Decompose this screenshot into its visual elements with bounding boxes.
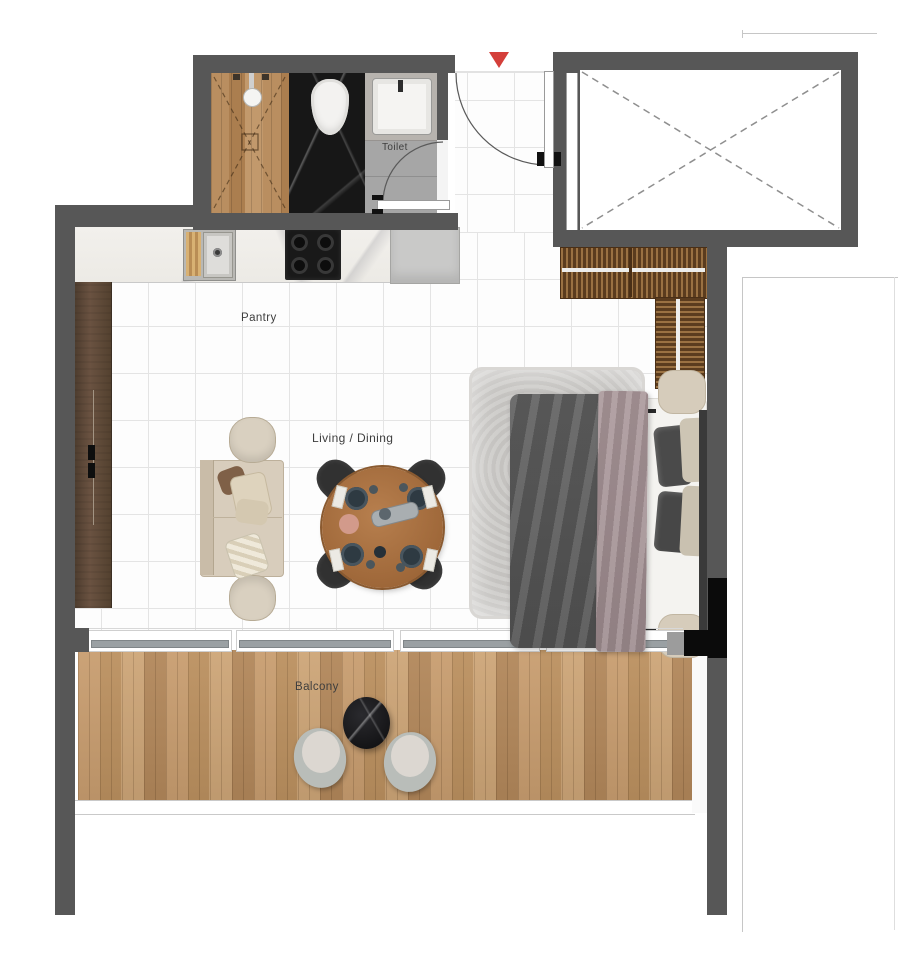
wall-bathroom-bottom: [193, 213, 458, 230]
structural-column: [684, 630, 710, 656]
balcony-right-gap: [692, 650, 707, 813]
floor-plan: Toilet Pantry Living / Dining Balcony: [0, 0, 900, 979]
place-setting-plate: [345, 487, 368, 510]
armchair-top: [229, 417, 276, 463]
bed-headboard: [699, 410, 707, 634]
balcony-table: [343, 697, 390, 749]
shower-head: [243, 88, 262, 107]
room-label-pantry: Pantry: [241, 312, 277, 324]
sink-faucet-icon: [213, 248, 222, 257]
shower-valve-mark: [262, 74, 269, 80]
wall-right: [707, 232, 727, 915]
wardrobe-rod: [562, 268, 705, 272]
place-setting-plate: [341, 543, 364, 566]
balcony-chair-cushion: [391, 735, 429, 777]
wall-left-top: [55, 205, 193, 227]
wall-shaft-right: [841, 52, 858, 247]
glass: [366, 560, 375, 569]
sofa-pillow-beige: [234, 498, 269, 526]
toilet-door-opening: [437, 140, 448, 205]
glass: [399, 483, 408, 492]
table-centerpiece-item: [379, 508, 391, 520]
context-line-right-h: [742, 277, 898, 278]
armchair-bottom: [229, 575, 276, 621]
bed-throw-blanket: [596, 391, 649, 653]
room-label-toilet: Toilet: [382, 142, 408, 153]
toilet-door: [377, 200, 450, 210]
basin-faucet-icon: [398, 80, 403, 92]
balcony-chair-cushion: [302, 731, 340, 773]
wardrobe-divider: [629, 247, 632, 297]
wall-left: [55, 205, 75, 915]
wall-bathroom-left: [193, 55, 211, 213]
entry-door: [544, 71, 554, 168]
toilet-door-hinge: [372, 195, 383, 200]
room-label-living-dining: Living / Dining: [312, 431, 393, 445]
toilet-door-hinge: [372, 209, 383, 214]
sliding-door-glass: [91, 640, 229, 648]
wall-bathroom-top: [193, 55, 455, 73]
hob-burner: [317, 234, 334, 251]
wardrobe-top-section: [560, 247, 709, 299]
entry-marker-icon: [489, 52, 509, 68]
balcony-edge-band: [75, 800, 695, 815]
entry-door-hinge: [554, 152, 561, 166]
hob-burner: [291, 257, 308, 274]
context-line-right-v: [742, 277, 743, 932]
hob-burner: [291, 234, 308, 251]
glass: [369, 485, 378, 494]
bedside-pouf-top: [658, 370, 706, 414]
sliding-door-panel: [88, 630, 232, 652]
wall-balcony-corner: [75, 628, 89, 652]
refrigerator: [390, 227, 460, 284]
table-cup: [374, 546, 386, 558]
wall-shaft-top: [553, 52, 858, 70]
sofa-backrest: [200, 460, 214, 575]
sliding-door-panel: [236, 630, 394, 652]
structural-column: [708, 578, 727, 658]
context-line-far-right: [894, 277, 895, 930]
context-line-top-tick: [742, 30, 743, 38]
toilet-floor-joint: [365, 176, 437, 177]
shower-valve-mark: [233, 74, 240, 80]
shaft-door-strip: [566, 73, 578, 230]
context-line-top: [742, 33, 877, 34]
cabinet-handle: [88, 445, 95, 460]
hob-burner: [317, 257, 334, 274]
entry-door-hinge: [537, 152, 544, 166]
wall-shaft-bottom: [553, 230, 858, 247]
sliding-door-glass: [239, 640, 391, 648]
elevator-void-interior: [580, 70, 841, 230]
column-gray-pad: [667, 632, 684, 655]
table-pink-plate: [339, 514, 359, 534]
cabinet-handle: [88, 463, 95, 478]
glass: [396, 563, 405, 572]
wall-bathroom-right: [437, 73, 448, 140]
room-label-balcony: Balcony: [295, 681, 339, 693]
cutting-board: [186, 232, 201, 276]
